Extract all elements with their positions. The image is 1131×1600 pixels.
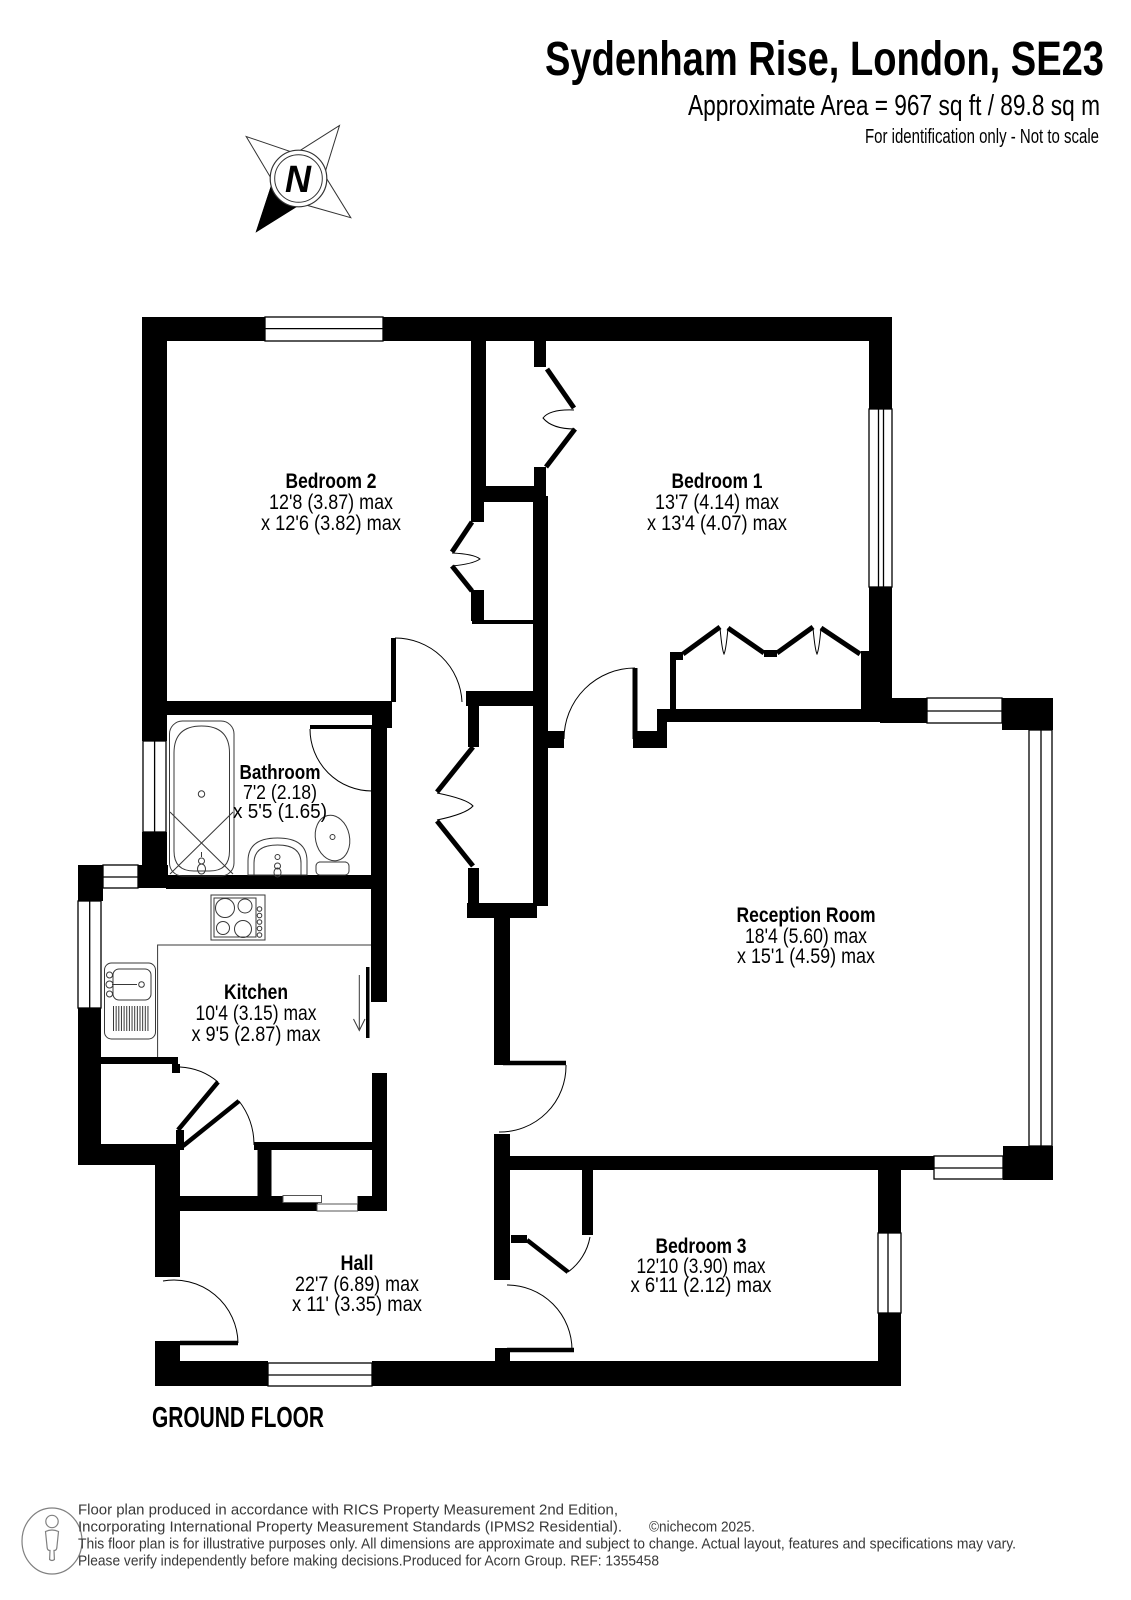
svg-text:©nichecom 2025.: ©nichecom 2025. <box>649 1519 755 1536</box>
svg-text:x 11' (3.35) max: x 11' (3.35) max <box>292 1293 422 1316</box>
svg-text:This floor plan is for illustr: This floor plan is for illustrative purp… <box>78 1536 1016 1553</box>
svg-text:x 6'11 (2.12) max: x 6'11 (2.12) max <box>631 1274 772 1297</box>
svg-text:GROUND FLOOR: GROUND FLOOR <box>152 1402 324 1434</box>
svg-text:x 15'1 (4.59) max: x 15'1 (4.59) max <box>737 945 875 968</box>
svg-text:13'7 (4.14) max: 13'7 (4.14) max <box>655 491 779 514</box>
svg-text:Floor plan produced in accorda: Floor plan produced in accordance with R… <box>78 1502 618 1519</box>
svg-text:10'4 (3.15) max: 10'4 (3.15) max <box>196 1002 317 1025</box>
svg-text:Bedroom 2: Bedroom 2 <box>286 470 377 493</box>
svg-text:Sydenham Rise, London, SE23: Sydenham Rise, London, SE23 <box>545 33 1104 86</box>
svg-text:Please verify independently be: Please verify independently before makin… <box>78 1553 659 1570</box>
svg-text:Hall: Hall <box>341 1252 374 1275</box>
svg-text:Approximate Area = 967 sq ft /: Approximate Area = 967 sq ft / 89.8 sq m <box>688 90 1100 122</box>
svg-text:For identification only - Not: For identification only - Not to scale <box>865 126 1099 148</box>
svg-text:x 13'4 (4.07) max: x 13'4 (4.07) max <box>647 512 787 535</box>
svg-text:Reception Room: Reception Room <box>737 904 876 927</box>
svg-text:x 9'5 (2.87) max: x 9'5 (2.87) max <box>192 1023 321 1046</box>
svg-text:Kitchen: Kitchen <box>224 981 288 1004</box>
svg-text:12'8 (3.87) max: 12'8 (3.87) max <box>269 491 393 514</box>
svg-text:x 12'6 (3.82) max: x 12'6 (3.82) max <box>261 512 401 535</box>
svg-text:Bedroom 1: Bedroom 1 <box>672 470 763 493</box>
svg-text:Bathroom: Bathroom <box>240 762 321 784</box>
svg-text:Incorporating International Pr: Incorporating International Property Mea… <box>78 1519 622 1536</box>
svg-text:N: N <box>285 159 312 201</box>
svg-text:x 5'5 (1.65): x 5'5 (1.65) <box>233 801 327 823</box>
